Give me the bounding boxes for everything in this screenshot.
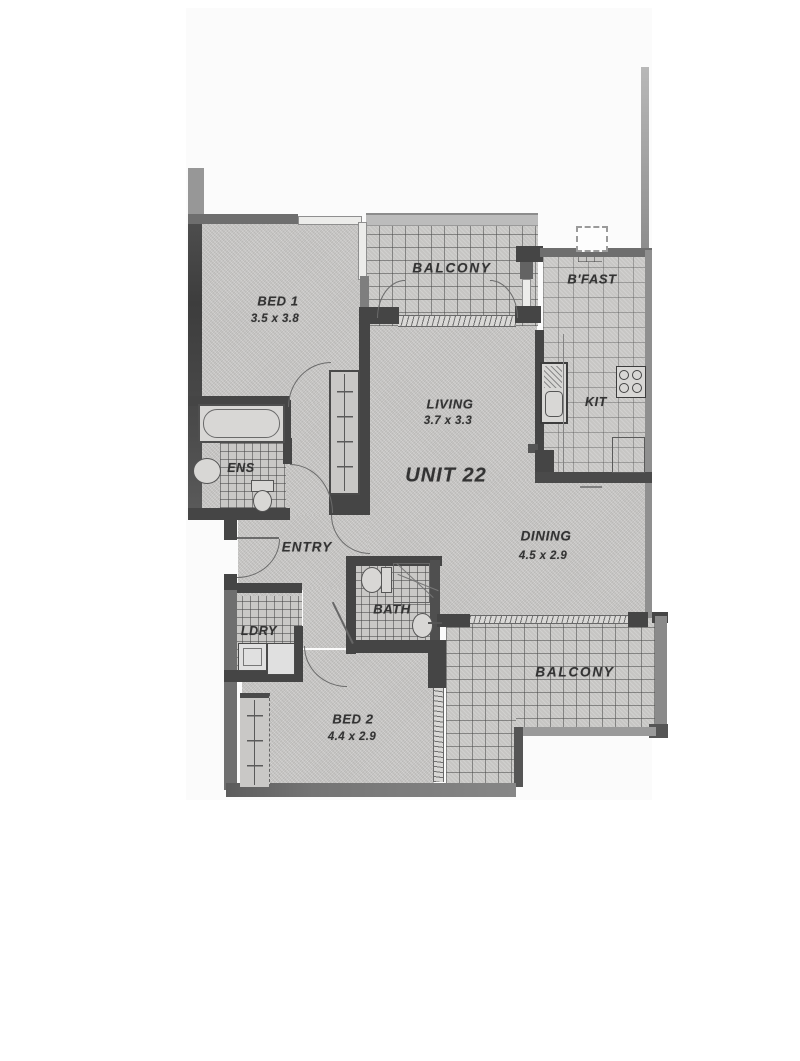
bath-toilet-cistern <box>381 567 392 593</box>
wall <box>437 614 470 627</box>
wall <box>188 508 290 520</box>
unit-title: UNIT 22 <box>405 465 486 488</box>
bathtub <box>198 404 285 443</box>
bed1-label: BED 1 <box>257 294 298 309</box>
wardrobe <box>240 693 270 787</box>
wall <box>224 590 237 790</box>
wall <box>515 306 541 323</box>
stove-burner <box>632 383 642 393</box>
laundry-label: LDRY <box>241 624 277 638</box>
bed1-dims: 3.5 x 3.8 <box>251 313 299 325</box>
wardrobe-hangers <box>242 700 267 785</box>
wall <box>188 214 298 224</box>
duct <box>576 226 608 252</box>
washing-machine <box>267 643 295 675</box>
stove-burner <box>619 370 629 380</box>
fridge-space <box>612 437 645 473</box>
ensuite-basin <box>193 458 221 484</box>
dining-balcony-sliding-door <box>470 615 628 624</box>
wall <box>224 520 237 540</box>
dining-dims: 4.5 x 2.9 <box>519 550 567 562</box>
wall <box>329 495 370 515</box>
balcony-left-window <box>358 222 367 280</box>
bath-basin <box>412 613 433 638</box>
floor-plan-scan: BED 1 3.5 x 3.8 BALCONY B'FAST LIVING 3.… <box>0 0 800 1061</box>
balcony-bottom-tiles-left <box>446 716 516 786</box>
wall <box>188 168 204 216</box>
bath-label: BATH <box>373 602 411 617</box>
shower <box>393 563 430 603</box>
wall <box>655 616 667 738</box>
ensuite-label: ENS <box>227 461 255 475</box>
entry-floor-lower <box>303 588 349 648</box>
bath-toilet-bowl <box>361 567 383 593</box>
wall <box>430 560 440 646</box>
balcony-top-label: BALCONY <box>412 261 491 276</box>
stove-burner <box>619 383 629 393</box>
kitchen-bench-wall <box>535 472 652 483</box>
balcony-right-window <box>522 279 531 309</box>
living-dims: 3.7 x 3.3 <box>424 415 472 427</box>
living-label: LIVING <box>427 397 474 412</box>
door-swing-indicator <box>580 486 602 488</box>
wardrobe-hangers <box>333 374 356 491</box>
ensuite-toilet-bowl <box>253 490 272 512</box>
bathtub-inner <box>203 409 280 438</box>
wardrobe <box>329 370 360 495</box>
kitchen-label: KIT <box>585 395 607 409</box>
entry-label: ENTRY <box>282 540 333 555</box>
wall <box>428 640 446 688</box>
bed2-label: BED 2 <box>332 712 373 727</box>
kitchen-bench-line <box>563 334 564 472</box>
balcony-bottom-label: BALCONY <box>535 665 614 680</box>
balcony-top-railing <box>366 213 538 226</box>
wall <box>520 262 533 279</box>
laundry-tub-inner <box>243 648 262 666</box>
bfast-label: B'FAST <box>567 272 616 287</box>
bed2-dims: 4.4 x 2.9 <box>328 731 376 743</box>
wall <box>516 727 656 736</box>
wall <box>645 250 652 618</box>
scan-artifact-line <box>641 67 649 250</box>
wall <box>516 246 543 262</box>
stove-burner <box>632 370 642 380</box>
bath-basin-tap <box>428 622 442 624</box>
wall <box>628 612 648 627</box>
kitchen-sink-bowl <box>545 391 563 417</box>
stove <box>616 366 646 398</box>
dining-label: DINING <box>521 529 572 544</box>
wall <box>514 727 523 787</box>
wall <box>359 307 370 515</box>
bed1-window <box>298 216 362 225</box>
laundry-tub <box>238 643 267 671</box>
kitchen-sink-drainer <box>544 366 562 388</box>
